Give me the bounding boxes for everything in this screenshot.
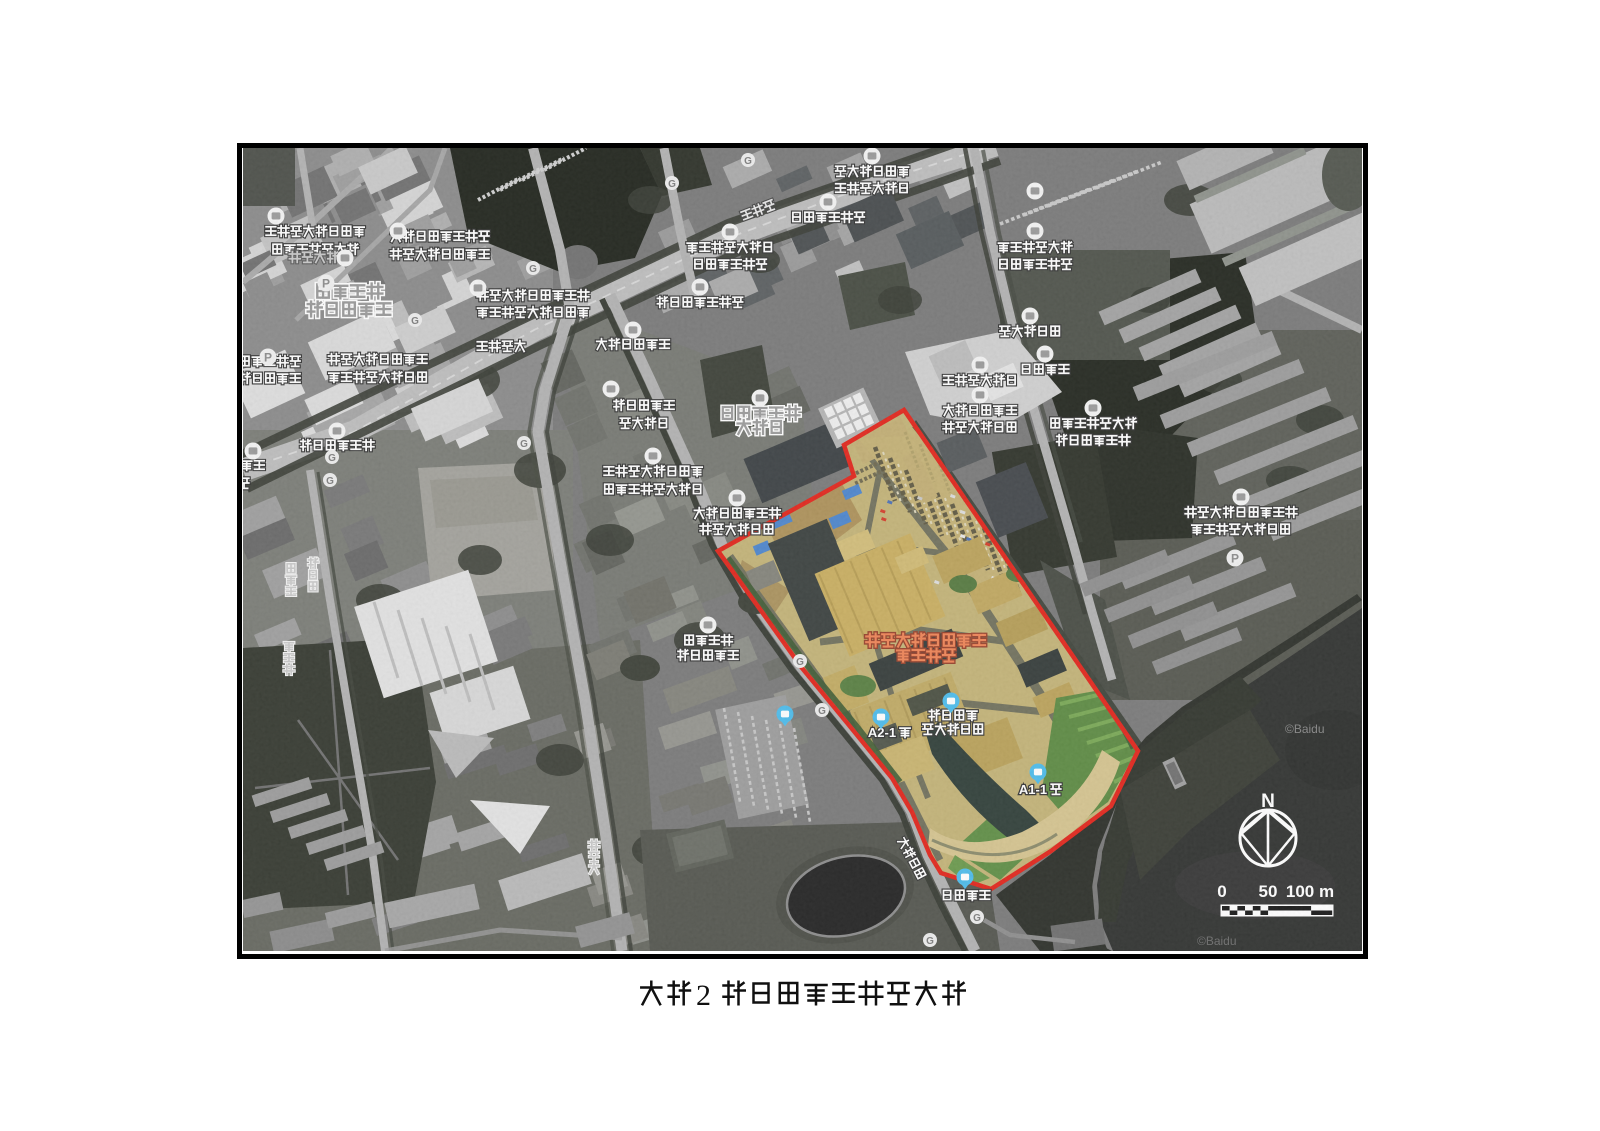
svg-text:2: 2 [696,979,711,1012]
